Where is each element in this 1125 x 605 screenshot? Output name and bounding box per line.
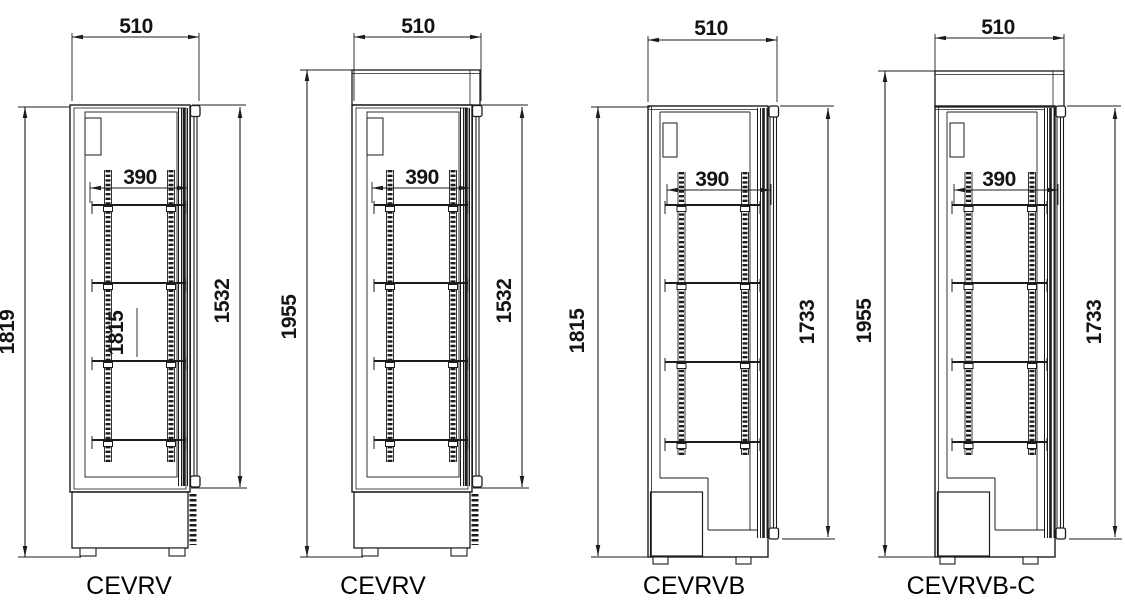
fig2-overall-height-dim: 1955 — [278, 294, 301, 340]
fig4-overall-height-dim: 1955 — [853, 298, 876, 344]
fig4-model-label: CEVRVB-C — [907, 572, 1036, 600]
fig3-width-dim: 510 — [694, 17, 728, 40]
fig1-width-dim: 510 — [119, 15, 153, 38]
dimension-labels: 510 390 1819 1815 1532 510 390 1955 1532… — [0, 15, 1106, 355]
model-labels: CEVRV CEVRV CEVRVB CEVRVB-C — [86, 572, 1035, 600]
cabinet-line-art — [18, 33, 1122, 564]
fig2-model-label: CEVRV — [340, 572, 426, 600]
fig1-door-height-dim: 1532 — [211, 279, 234, 324]
fig1-model-label: CEVRV — [86, 572, 172, 600]
fig3-shelf-width-dim: 390 — [695, 168, 729, 191]
fig4-shelf-width-dim: 390 — [982, 168, 1016, 191]
fig2-shelf-width-dim: 390 — [405, 166, 439, 189]
drawing-canvas: 510 390 1819 1815 1532 510 390 1955 1532… — [0, 0, 1125, 605]
fig1-shelf-width-dim: 390 — [123, 166, 157, 189]
fig4-door-height-dim: 1733 — [1083, 300, 1106, 345]
technical-drawing: 510 390 1819 1815 1532 510 390 1955 1532… — [0, 0, 1125, 605]
fig3-door-height-dim: 1733 — [796, 300, 819, 345]
fig2-door-height-dim: 1532 — [493, 279, 516, 324]
fig3-overall-height-dim: 1815 — [566, 308, 589, 354]
fig4-width-dim: 510 — [981, 16, 1015, 39]
fig1-overall-height-dim: 1819 — [0, 310, 19, 355]
fig3-model-label: CEVRVB — [643, 572, 745, 600]
fig1-interior-height-dim: 1815 — [105, 310, 128, 356]
fig2-width-dim: 510 — [401, 15, 435, 38]
